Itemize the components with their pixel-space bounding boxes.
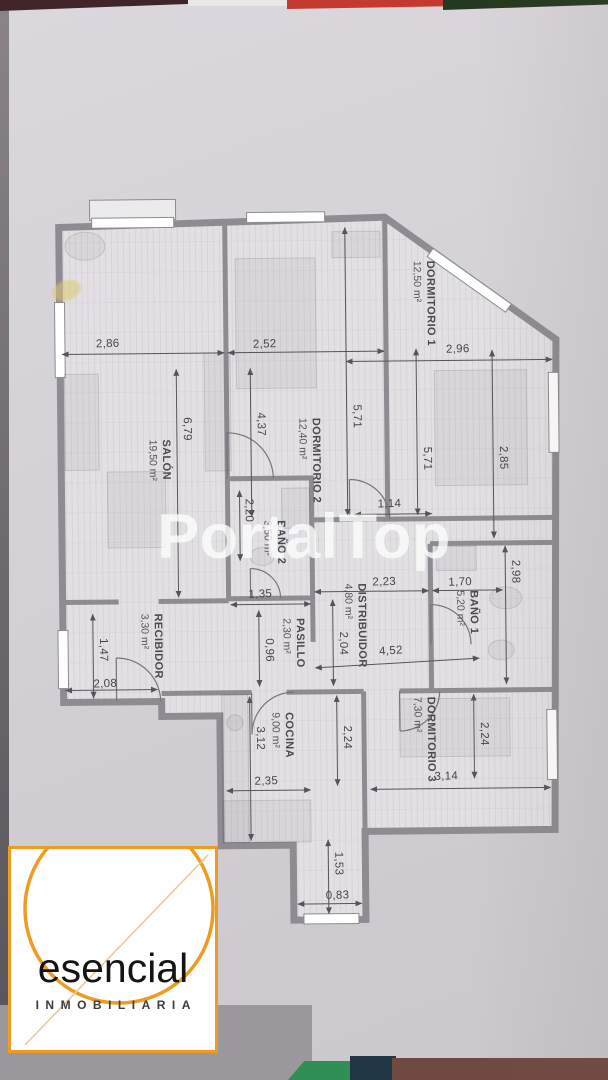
room-label-dormitorio-2: DORMITORIO 2 12,40 m² (295, 418, 324, 504)
dim-top-left: 2,86 (96, 338, 120, 351)
floorplan-photo: 2,86 2,52 2,96 6,79 4,37 5,71 5,71 2,85 … (0, 0, 608, 1080)
dim-salon-h: 6,79 (181, 417, 193, 441)
dim-dorm1-h: 5,71 (421, 447, 433, 471)
dim-top-right: 2,96 (446, 343, 470, 356)
room-label-recibidor: RECIBIDOR 3,30 m² (137, 613, 166, 679)
agency-logo: esencial INMOBILIARIA (8, 846, 218, 1053)
room-label-pasillo: PASILLO 2,30 m² (279, 618, 307, 668)
photo-bottom-strip-teal (350, 1056, 396, 1080)
room-label-dormitorio-1: DORMITORIO 1 12,50 m² (409, 261, 438, 347)
dim-recibidor-v: 1,47 (97, 638, 109, 662)
logo-tagline: INMOBILIARIA (11, 998, 215, 1012)
dim-recibidor-w: 2,08 (93, 678, 117, 691)
dim-bano1-w: 1,70 (448, 576, 472, 589)
dim-dorm3-v: 2,24 (478, 722, 490, 746)
room-label-distribuidor: DISTRIBUIDOR 4,80 m² (340, 583, 369, 668)
dim-terrace-v: 1,53 (332, 852, 344, 876)
dim-cocina-v: 3,12 (254, 726, 266, 750)
dim-cocina-w: 2,35 (254, 775, 278, 788)
room-label-bano-1: BAÑO 1 5,20 m² (453, 590, 481, 634)
room-label-salon: SALÓN 19,50 m² (145, 439, 173, 481)
dim-dorm1-w: 2,85 (497, 446, 509, 470)
dim-dist-diag: 4,52 (379, 644, 403, 657)
dim-pasillo-w: 0,96 (263, 638, 275, 662)
dim-dorm2-h: 5,71 (351, 404, 363, 428)
dim-terrace-w: 0,83 (326, 889, 350, 902)
dim-bano2-w: 1,35 (248, 588, 272, 601)
room-label-cocina: COCINA 9,00 m² (268, 712, 296, 758)
portaltop-watermark: PortalTop (157, 501, 451, 573)
room-label-dormitorio-3: DORMITORIO 3 7,30 m² (410, 697, 439, 783)
dim-top-mid: 2,52 (253, 338, 277, 351)
dim-bano1-top: 2,98 (509, 560, 521, 584)
photo-bottom-strip-brown (392, 1058, 608, 1080)
photo-top-strip-white (188, 0, 292, 6)
dim-dorm2-left: 4,37 (255, 412, 267, 436)
dim-dist-top: 2,23 (372, 576, 396, 589)
logo-name: esencial (11, 945, 215, 992)
dim-cocina-v2: 2,24 (341, 725, 353, 749)
